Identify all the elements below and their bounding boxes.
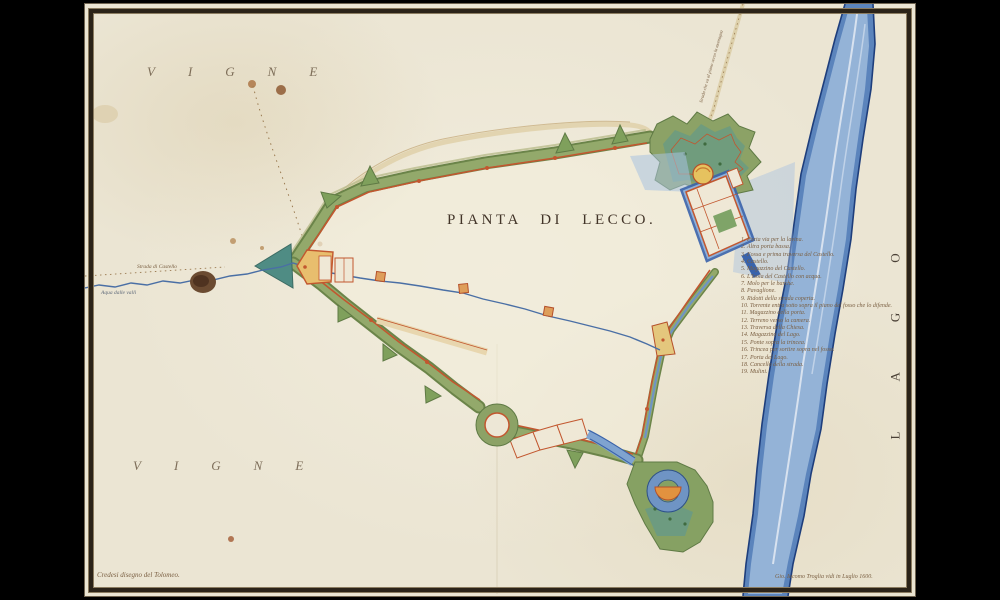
legend-item: 16. Trincea per sortire sopra nel fosso. xyxy=(741,347,901,354)
vigne-label-top: VIGNE xyxy=(147,64,350,80)
legend-item: 10. Torrente entra sotto sopra il piano … xyxy=(741,303,901,310)
credit-left: Credesi disegno del Tolomeo. xyxy=(97,571,180,579)
legend-item: 4. Castello. xyxy=(741,259,901,266)
screenshot-stage: PIANTA DI LECCO. VIGNE VIGNE LAGO Strada… xyxy=(0,0,1000,600)
legend-item: 7. Molo per le barche. xyxy=(741,281,901,288)
legend-item: 1. Porta via per la lavina. xyxy=(741,237,901,244)
legend-item: 2. Altra porta bassa. xyxy=(741,244,901,251)
legend-item: 11. Magazzino della porta. xyxy=(741,310,901,317)
legend-item: 9. Ridotti della strada coperta. xyxy=(741,296,901,303)
map-legend: 1. Porta via per la lavina. 2. Altra por… xyxy=(741,237,901,377)
legend-item: 18. Cancello della strada. xyxy=(741,362,901,369)
legend-item: 12. Terreno verso la camera. xyxy=(741,318,901,325)
strada-castello-label: Strada di Castello xyxy=(137,264,177,270)
legend-item: 17. Porta del Lago. xyxy=(741,355,901,362)
aqua-valli-label: Aqua dalle valli xyxy=(101,290,136,296)
credit-right: Gio. Iacomo Troglia vidi in Luglio 1600. xyxy=(775,574,873,580)
legend-item: 5. Magazzino del Castello. xyxy=(741,266,901,273)
legend-item: 6. L'Isola del Castello con acqua. xyxy=(741,274,901,281)
map-sheet: PIANTA DI LECCO. VIGNE VIGNE LAGO Strada… xyxy=(85,4,915,596)
legend-item: 19. Mulini. xyxy=(741,369,901,376)
lake-fort xyxy=(627,462,713,552)
legend-item: 3. Fossa e prima traversa del Castello. xyxy=(741,252,901,259)
legend-item: 14. Magazzino del Lago. xyxy=(741,332,901,339)
ink-blot-hill xyxy=(193,275,209,287)
legend-item: 8. Pavaglione. xyxy=(741,288,901,295)
castle-round-tower xyxy=(693,164,713,184)
vigne-label-bottom: VIGNE xyxy=(133,458,336,474)
map-title: PIANTA DI LECCO. xyxy=(447,212,656,229)
